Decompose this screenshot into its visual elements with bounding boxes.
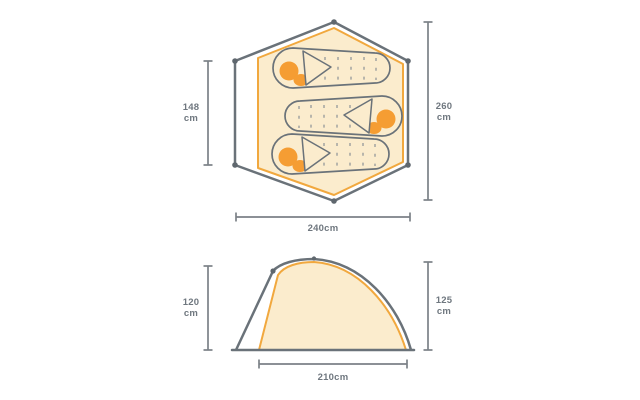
- tent-side-view: 120 cm 125 cm 210cm: [183, 256, 453, 383]
- dim-label-text: 240cm: [308, 223, 339, 234]
- dim-unit: cm: [184, 113, 198, 124]
- sleeping-bag-1: [273, 48, 390, 88]
- sleeping-bag-2: [285, 96, 402, 136]
- dim-unit: cm: [437, 112, 451, 123]
- inner-tent-profile: [259, 262, 406, 350]
- dim-side-view-outer-height: 125 cm: [424, 262, 453, 350]
- tent-top-view: 148 cm 260 cm 240cm: [183, 19, 453, 234]
- dim-value: 125: [436, 295, 453, 306]
- dim-value: 148: [183, 102, 200, 113]
- dim-unit: cm: [184, 308, 198, 319]
- sleeping-bag-3: [272, 134, 389, 174]
- dim-side-view-inner-height: 120 cm: [183, 266, 213, 350]
- dim-unit: cm: [437, 306, 451, 317]
- dim-value: 260: [436, 101, 453, 112]
- dim-value: 120: [183, 297, 200, 308]
- dim-top-view-outer-length: 260 cm: [424, 22, 453, 200]
- tent-dimensions-diagram: 148 cm 260 cm 240cm: [0, 0, 640, 400]
- dim-label-text: 210cm: [318, 372, 349, 383]
- dim-top-view-inner-width: 148 cm: [183, 61, 213, 165]
- diagram-canvas: 148 cm 260 cm 240cm: [0, 0, 640, 400]
- dim-side-view-floor-length: 210cm: [259, 360, 407, 384]
- dim-top-view-outer-width: 240cm: [236, 213, 410, 235]
